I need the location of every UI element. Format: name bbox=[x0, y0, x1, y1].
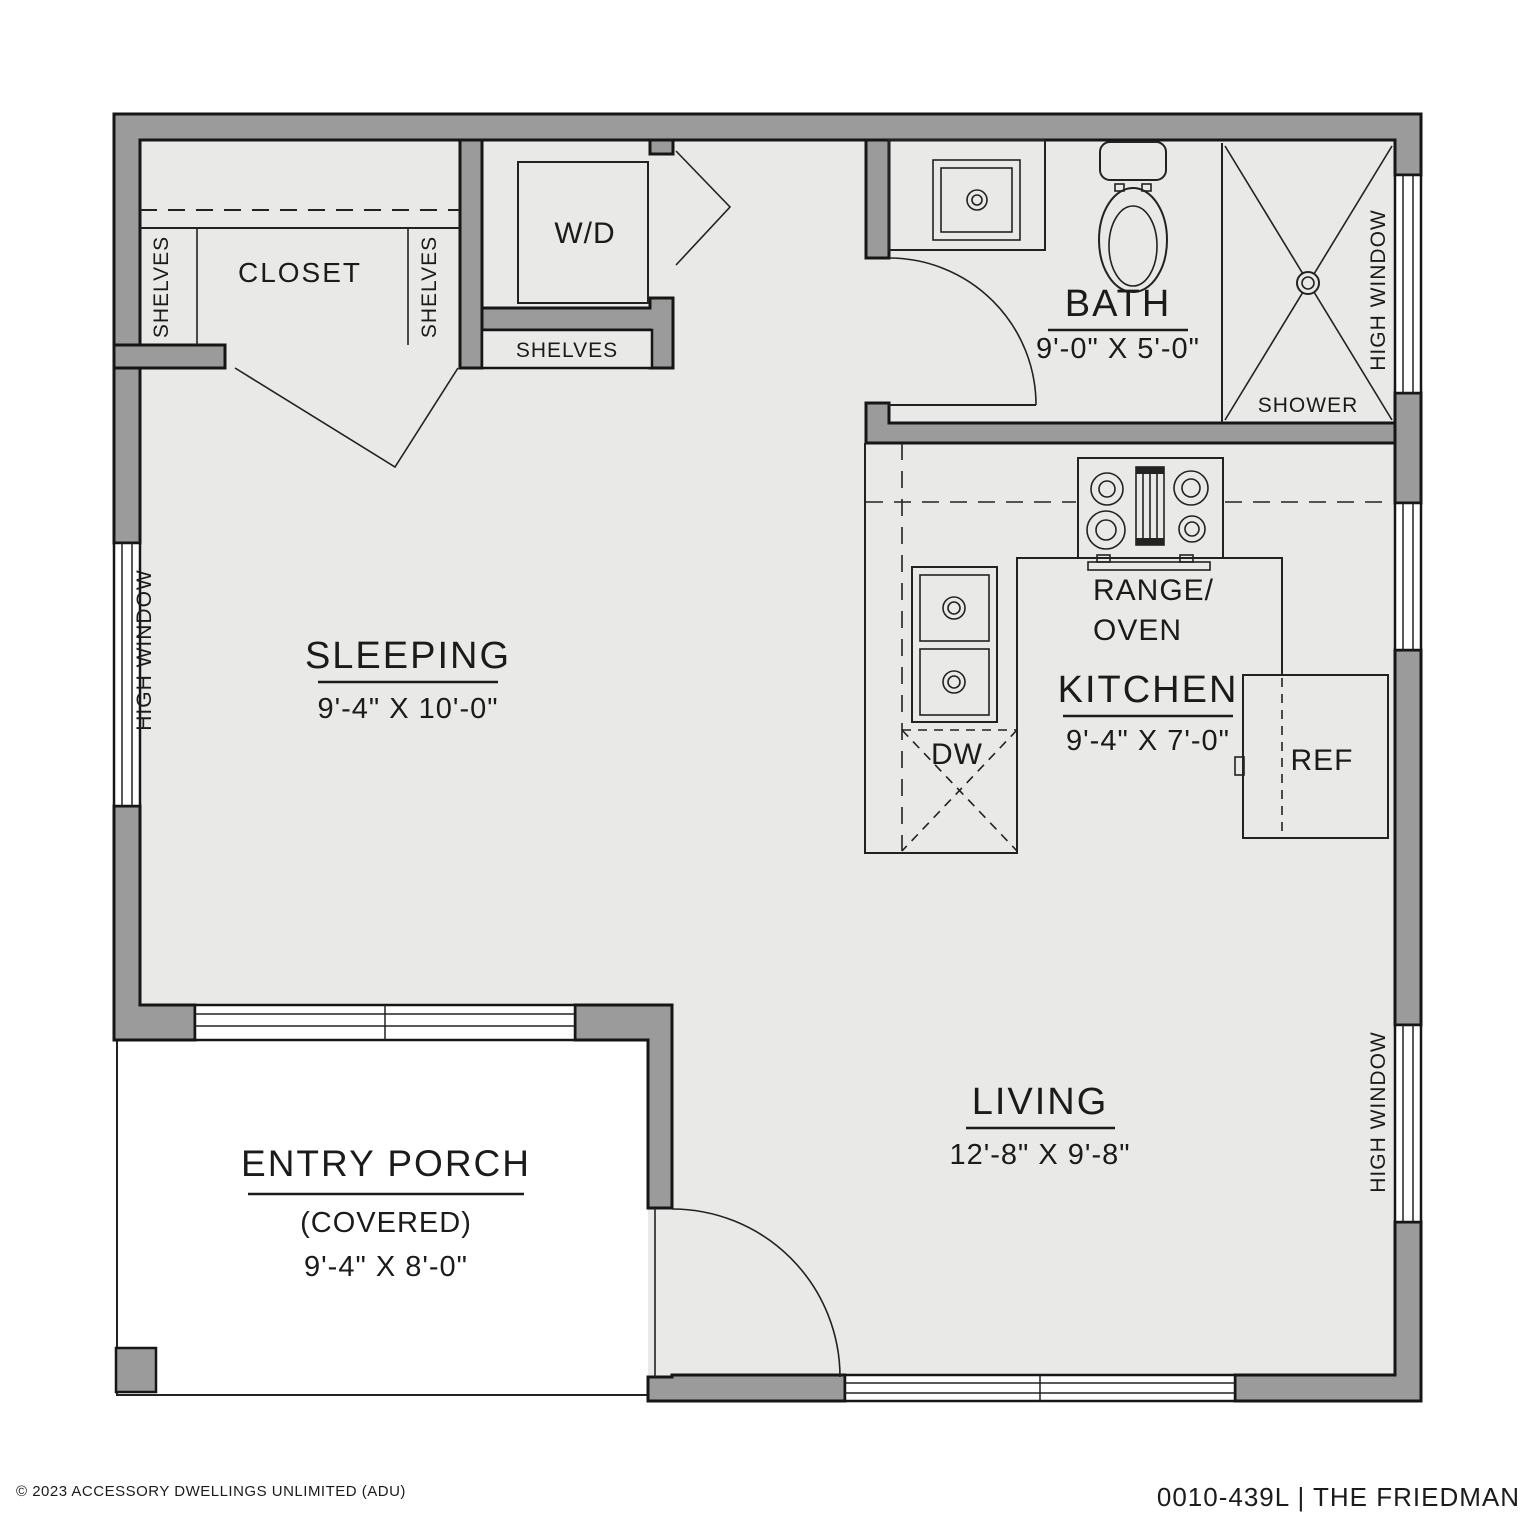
shower-label: SHOWER bbox=[1258, 394, 1359, 417]
room-label-living: LIVING bbox=[972, 1081, 1109, 1123]
plan-id-text: 0010-439L | THE FRIEDMAN bbox=[1157, 1482, 1520, 1512]
wall-closet-bottom bbox=[114, 345, 225, 368]
range-label-line1: RANGE/ bbox=[1093, 574, 1214, 607]
closet-shelves-right-label: SHELVES bbox=[418, 236, 441, 338]
sleeping-dims: 9'-4" X 10'-0" bbox=[317, 693, 498, 725]
high-window-bath-label: HIGH WINDOW bbox=[1367, 209, 1390, 370]
wall-right-lower bbox=[1395, 650, 1421, 1025]
wall-bath-west bbox=[866, 140, 889, 258]
porch-post bbox=[116, 1348, 156, 1392]
dishwasher-label: DW bbox=[931, 738, 983, 771]
kitchen-dims: 9'-4" X 7'-0" bbox=[1066, 725, 1230, 757]
window-bath-high bbox=[1395, 175, 1421, 393]
shelves-under-wd-label: SHELVES bbox=[516, 339, 618, 362]
window-living-south bbox=[845, 1375, 1235, 1401]
high-window-left-label: HIGH WINDOW bbox=[133, 569, 156, 730]
entry-porch-subtitle: (COVERED) bbox=[300, 1207, 472, 1239]
copyright-text: © 2023 ACCESSORY DWELLINGS UNLIMITED (AD… bbox=[16, 1483, 406, 1500]
wall-bottom-left-segment bbox=[648, 1375, 845, 1401]
room-label-entry-porch: ENTRY PORCH bbox=[241, 1143, 531, 1184]
room-label-closet: CLOSET bbox=[238, 257, 362, 288]
room-label-bath: BATH bbox=[1065, 283, 1172, 325]
window-kitchen bbox=[1395, 503, 1421, 650]
living-dims: 12'-8" X 9'-8" bbox=[949, 1139, 1130, 1171]
refrigerator-label: REF bbox=[1291, 744, 1354, 777]
bath-dims: 9'-0" X 5'-0" bbox=[1036, 333, 1200, 365]
floor-plan-drawing: SLEEPING 9'-4" X 10'-0" BATH 9'-0" X 5'-… bbox=[0, 0, 1536, 1534]
range-label-line2: OVEN bbox=[1093, 614, 1182, 647]
high-window-living-label: HIGH WINDOW bbox=[1367, 1031, 1390, 1192]
wall-closet-divider bbox=[460, 140, 482, 368]
room-label-sleeping: SLEEPING bbox=[305, 635, 511, 677]
wall-wd-jamb bbox=[650, 140, 673, 154]
floor-plan-page: SLEEPING 9'-4" X 10'-0" BATH 9'-0" X 5'-… bbox=[0, 0, 1536, 1534]
entry-porch-dims: 9'-4" X 8'-0" bbox=[304, 1251, 468, 1283]
closet-shelves-left-label: SHELVES bbox=[150, 236, 173, 338]
wall-right-mid bbox=[1395, 393, 1421, 503]
window-sleeping-south bbox=[195, 1005, 575, 1040]
room-label-kitchen: KITCHEN bbox=[1058, 669, 1239, 711]
window-living-high bbox=[1395, 1025, 1421, 1222]
range-oven bbox=[1078, 458, 1223, 570]
washer-dryer-label: W/D bbox=[554, 217, 615, 250]
